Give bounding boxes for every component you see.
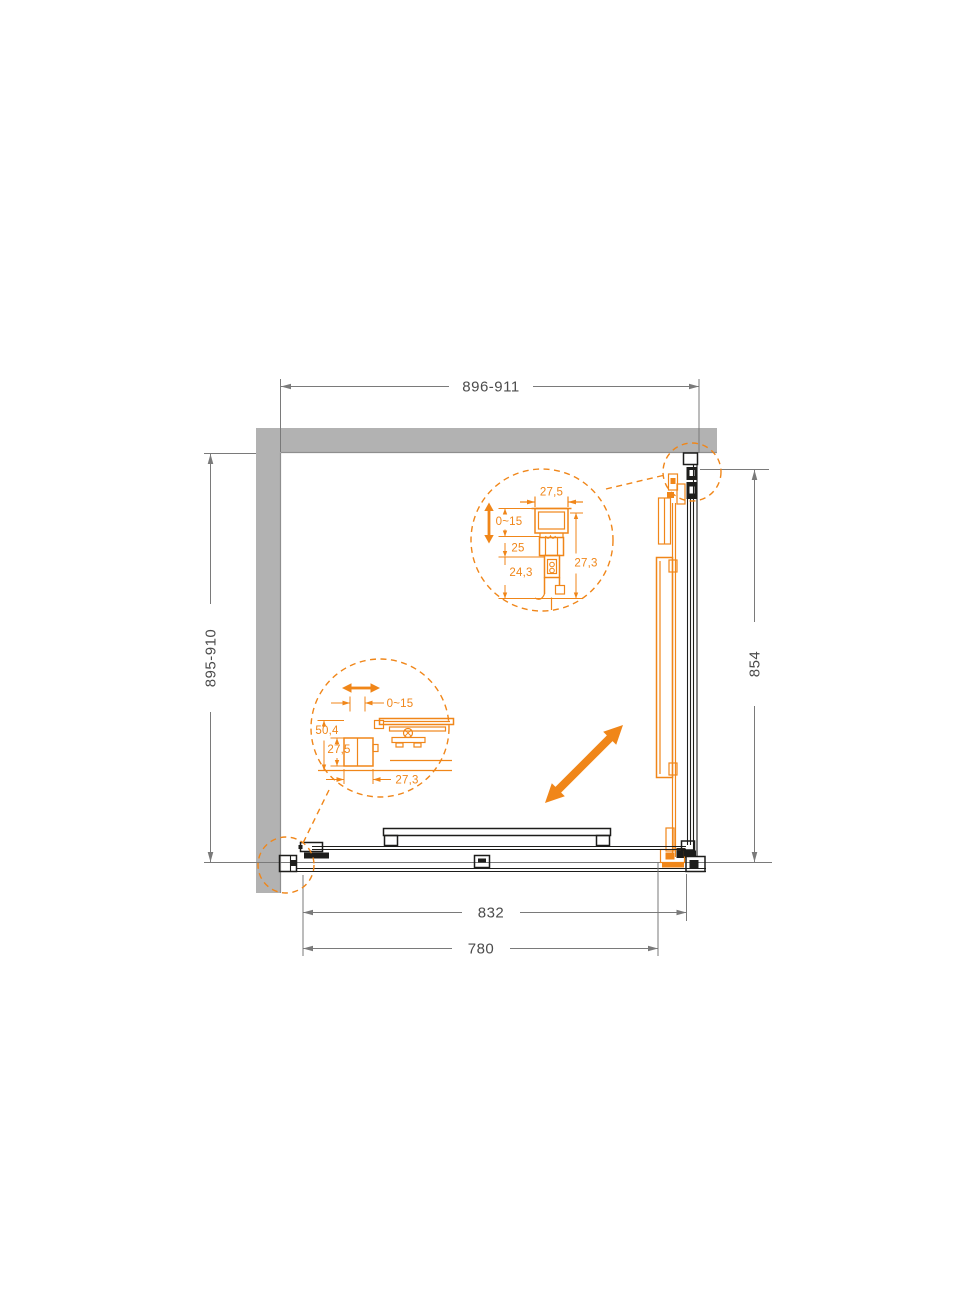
shower-enclosure-plan-drawing: 896-911 895-910 854 832 780 (0, 0, 975, 1300)
arrowhead-left (281, 384, 291, 390)
detail-label-adjust: 0~15 (387, 698, 414, 710)
arrowhead-up (752, 470, 758, 480)
detail-label-profile-height: 27,5 (327, 744, 350, 756)
arrowhead-left (303, 910, 313, 916)
detail-top-leader (606, 475, 665, 489)
dimension-label-left: 895-910 (203, 629, 220, 688)
detail-label-profile-width: 27,5 (540, 487, 563, 499)
bottom-roller-block (666, 853, 675, 860)
detail-top-dimensions: 27,5 0~15 25 24,3 27,3 (484, 487, 597, 599)
right-sliding-door (657, 474, 686, 868)
detail-label-adjust: 0~15 (496, 516, 523, 528)
handle-left-tab (385, 836, 398, 846)
detail-label-offset-lower: 24,3 (509, 567, 532, 579)
arrow-shaft (558, 738, 610, 790)
top-clip-knob (667, 492, 674, 498)
arrowhead-left (303, 946, 313, 952)
dimension-label-top: 896-911 (462, 379, 519, 396)
top-guide-clip (677, 484, 685, 504)
arrowhead-down (208, 852, 214, 862)
arrowhead (568, 500, 576, 505)
detail-label-assembly-height: 50,4 (315, 725, 339, 737)
dimension-label-bottom-inner: 780 (468, 941, 495, 958)
technical-drawing-canvas: 896-911 895-910 854 832 780 (0, 0, 975, 1300)
dimension-bottom-outer: 832 (303, 874, 687, 956)
left-roller-pin (299, 845, 303, 849)
arrowhead (503, 509, 507, 515)
arrowhead-up (484, 503, 493, 512)
bottom-corner-block (690, 860, 699, 868)
detail-top: 27,5 0~15 25 24,3 27,3 (471, 469, 665, 611)
arrowhead (574, 513, 578, 519)
top-roller-block (671, 478, 676, 484)
arrowhead-up (208, 454, 214, 464)
door-handle-profile (657, 558, 673, 778)
arrowhead (335, 760, 339, 766)
top-wall-profile (684, 453, 698, 465)
arrowhead-right (371, 683, 381, 692)
arrowhead-right (677, 910, 687, 916)
detail-label-offset-mid: 25 (511, 543, 524, 555)
double-arrow-horizontal-icon (349, 687, 373, 690)
arrowhead (503, 551, 507, 557)
arrowhead (503, 593, 507, 599)
detail-bottom: 0~15 50,4 27,5 27,3 (303, 659, 454, 843)
arrowhead (574, 593, 578, 599)
door-glass-lines (312, 847, 686, 850)
double-arrow-vertical-icon (488, 510, 491, 536)
detail-label-profile-depth: 27,3 (574, 558, 597, 570)
detail-top-profile (532, 509, 572, 611)
right-roller-base (684, 851, 696, 857)
bottom-track-lines (297, 869, 707, 872)
left-wall-profile-block (291, 860, 296, 866)
handle-right-tab (597, 836, 610, 846)
fixed-glass-lines (688, 465, 698, 857)
arrowhead (337, 777, 345, 782)
arrowhead-right (689, 384, 699, 390)
dimension-label-bottom-outer: 832 (478, 905, 505, 922)
detail-label-profile-width: 27,3 (395, 775, 418, 787)
center-guide-block (478, 859, 486, 863)
dimension-right: 854 (700, 470, 769, 863)
walls (256, 428, 717, 893)
arrowhead-down (484, 535, 493, 544)
bottom-roller-base (662, 863, 684, 868)
door-handle-profile (384, 829, 611, 836)
arrowhead (503, 531, 507, 537)
arrowhead (373, 777, 381, 782)
arrowhead-left (342, 683, 352, 692)
arrowhead-down (752, 852, 758, 862)
dimension-left: 895-910 (203, 454, 257, 863)
slide-direction-arrow-icon (545, 725, 623, 803)
bottom-sliding-door (280, 829, 707, 872)
top-wall (256, 428, 717, 452)
arrowhead (527, 500, 535, 505)
arrowhead (343, 701, 351, 706)
detail-bottom-leader (303, 790, 329, 843)
dimension-label-right: 854 (747, 651, 764, 678)
left-wall (256, 452, 280, 893)
arrowhead-right (648, 946, 658, 952)
arrowhead (365, 701, 373, 706)
right-fixed-panel (677, 453, 706, 872)
left-roller-base (304, 853, 329, 859)
